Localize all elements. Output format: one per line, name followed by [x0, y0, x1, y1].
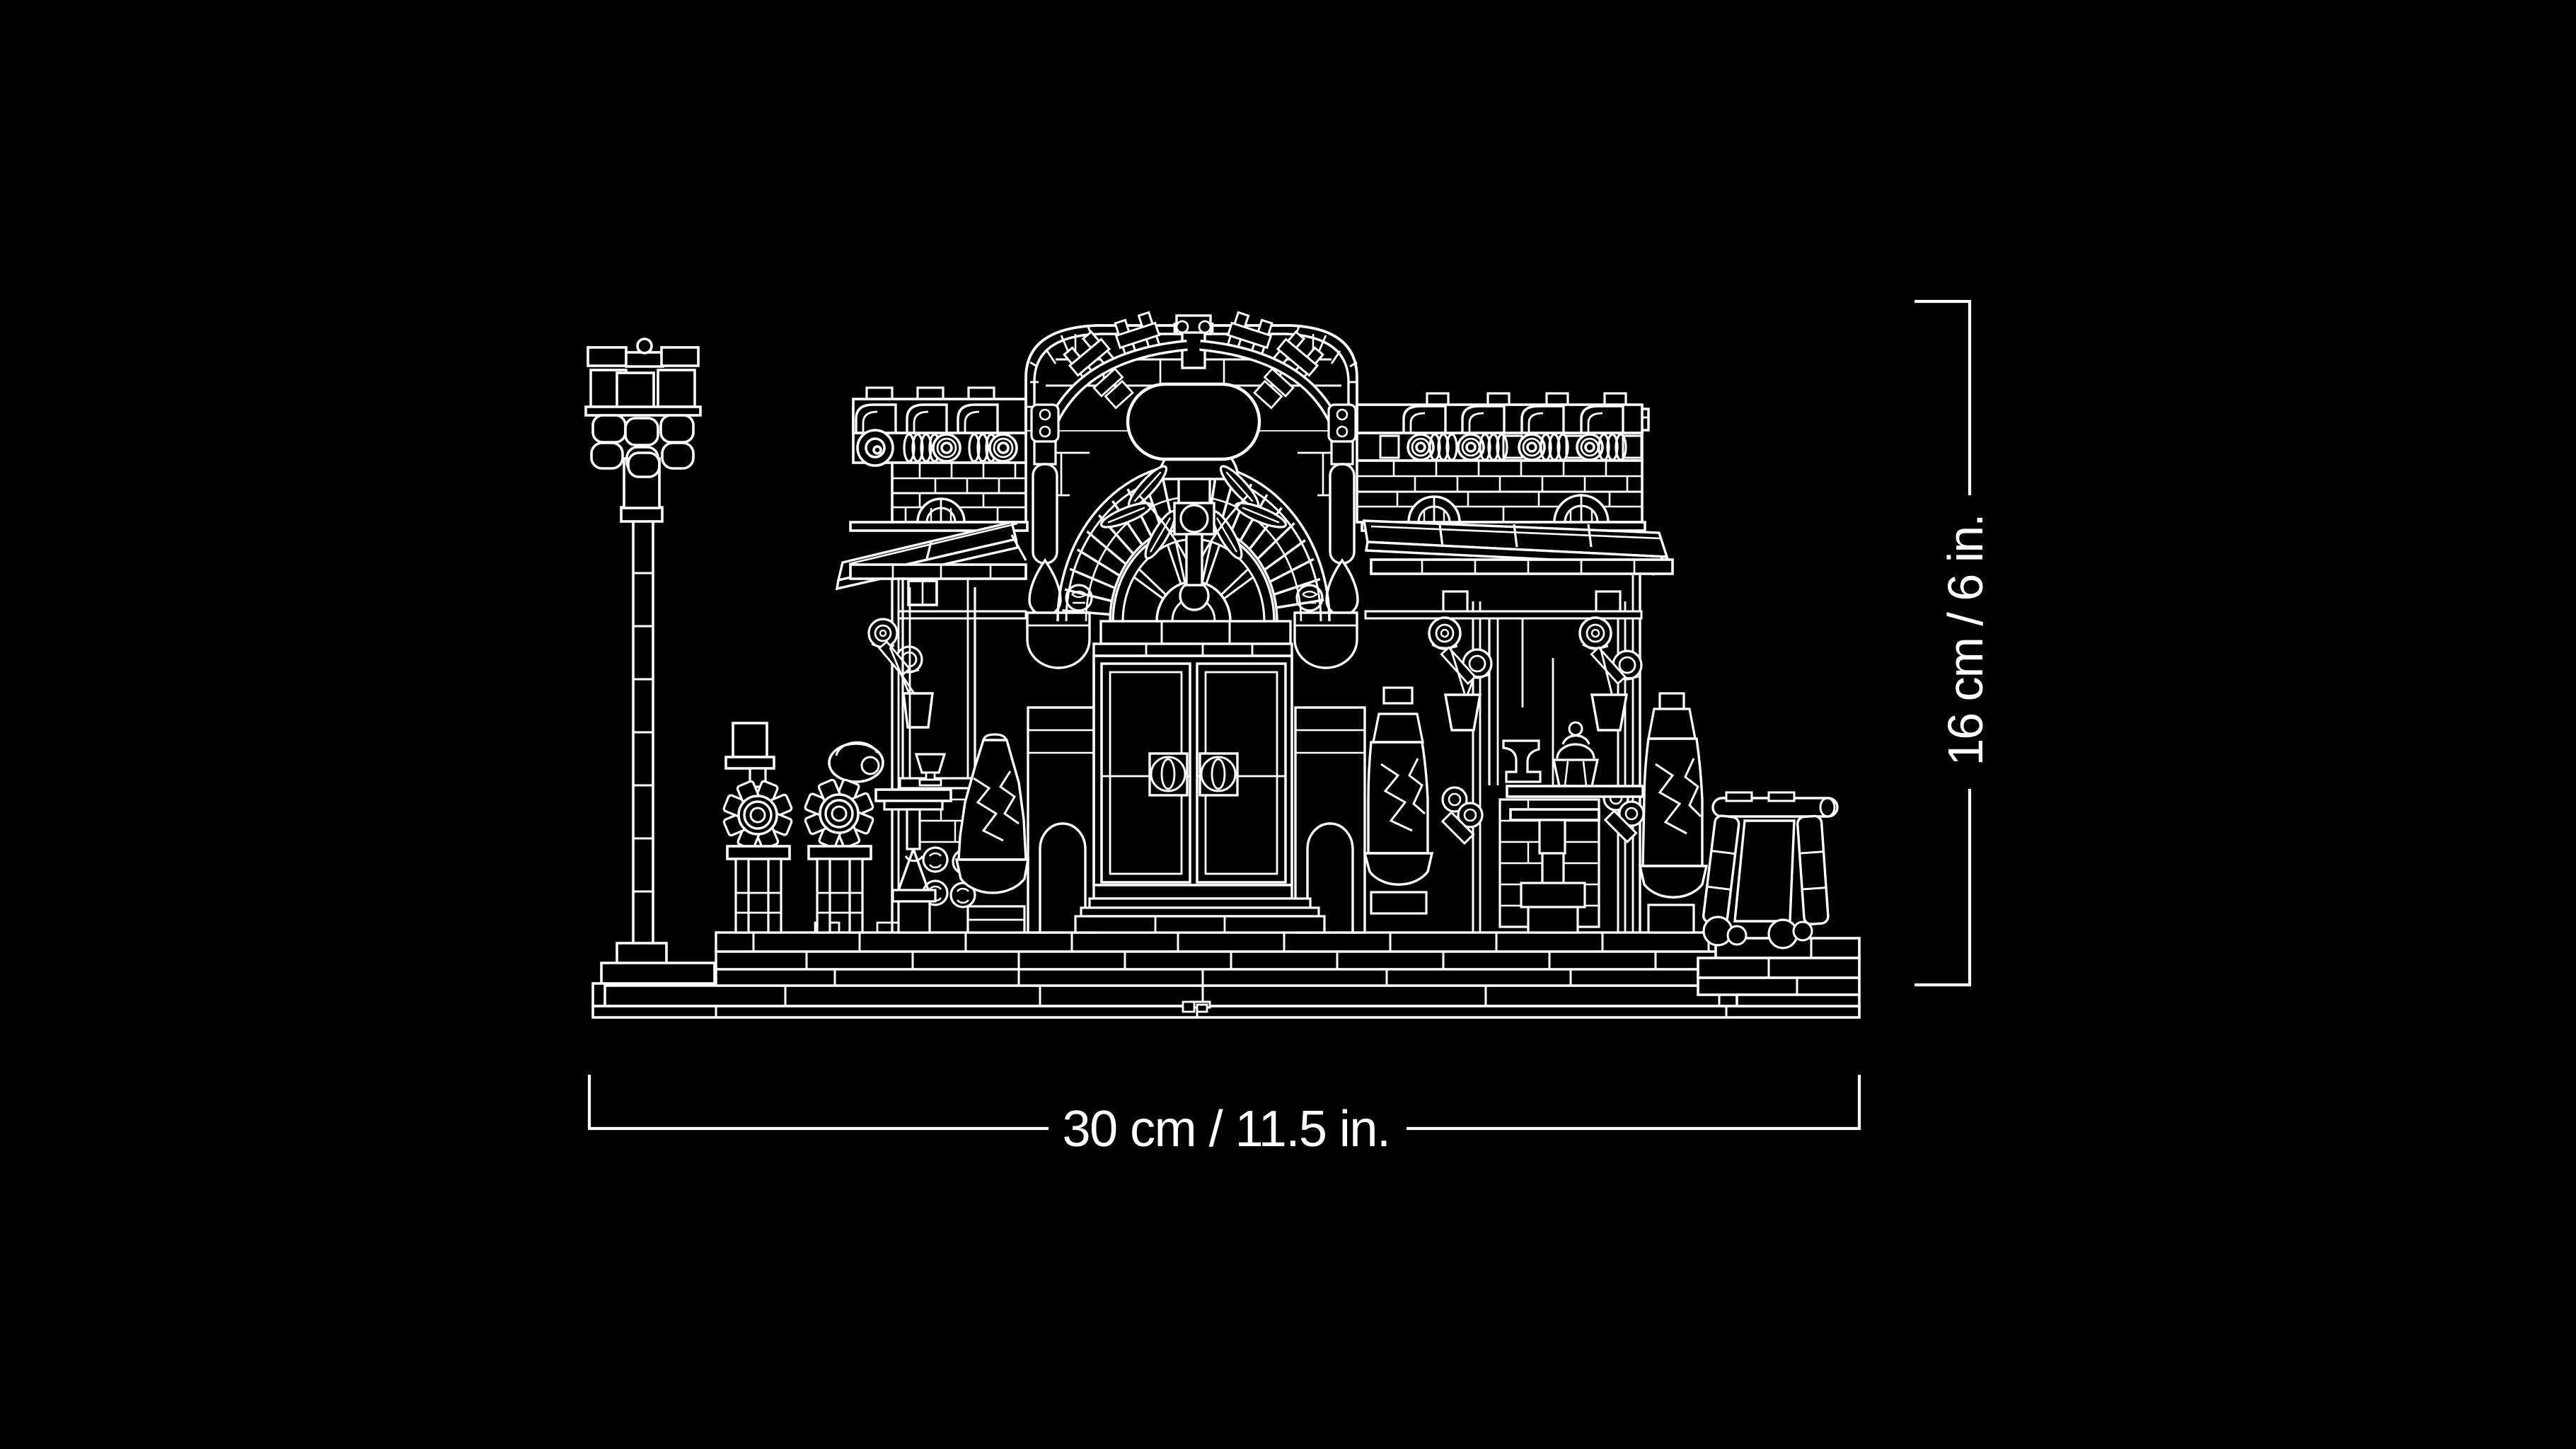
svg-text:16 cm / 6 in.: 16 cm / 6 in. — [1938, 514, 1993, 766]
svg-text:30 cm / 11.5 in.: 30 cm / 11.5 in. — [1063, 1101, 1390, 1158]
